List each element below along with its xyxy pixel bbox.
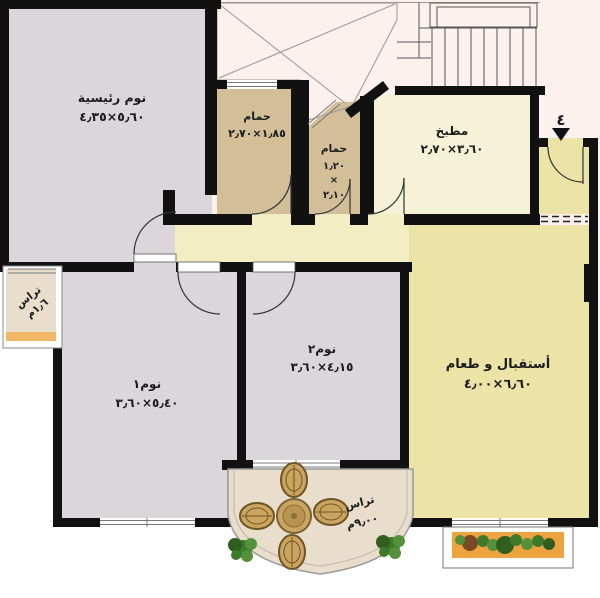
bath2-dims-x: × (330, 175, 338, 186)
master-bedroom-label: نوم رئيسية (78, 90, 146, 106)
kitchen-dims: ٣٫٦٠×٢٫٧٠ (421, 142, 484, 156)
kitchen-label: مطبخ (436, 124, 469, 138)
chair-icon (240, 503, 274, 529)
chair-icon (279, 535, 305, 569)
entry-vestibule (539, 147, 590, 214)
table-icon (277, 499, 311, 533)
bedroom1-label: نوم١ (133, 377, 161, 392)
planter-box (443, 527, 573, 568)
reception-label: أستقبال و طعام (446, 355, 551, 372)
reception-window (452, 518, 548, 527)
room-bedroom-1 (62, 272, 237, 518)
reception-dims: ٦٫٦٠×٤٫٠٠ (464, 377, 532, 392)
bedroom2-dims: ٤٫١٥×٣٫٦٠ (291, 360, 354, 374)
floor-plan-drawing: ٤ نوم رئيسية ٥٫٦٠×٤٫٣٥ حمام ١٫٨٥×٢٫٧٠ حم… (0, 0, 600, 598)
bedroom2-label: نوم٢ (308, 342, 336, 357)
floor-plan: ٤ نوم رئيسية ٥٫٦٠×٤٫٣٥ حمام ١٫٨٥×٢٫٧٠ حم… (0, 0, 600, 598)
unit-number: ٤ (556, 111, 565, 129)
chair-icon (281, 463, 307, 497)
bath1-window (227, 80, 277, 89)
bath2-label: حمام (321, 143, 347, 155)
bath2-dims-h: ٢٫١٠ (323, 190, 345, 201)
bath1-label: حمام (243, 110, 271, 123)
chair-icon (314, 499, 348, 525)
master-bedroom-dims: ٥٫٦٠×٤٫٣٥ (79, 109, 145, 124)
bedroom1-dims: ٥٫٤٠×٣٫٦٠ (116, 396, 179, 410)
bedroom1-window (100, 518, 195, 527)
bath2-dims-w: ١٫٢٠ (323, 161, 345, 172)
bath1-dims: ١٫٨٥×٢٫٧٠ (228, 127, 286, 140)
